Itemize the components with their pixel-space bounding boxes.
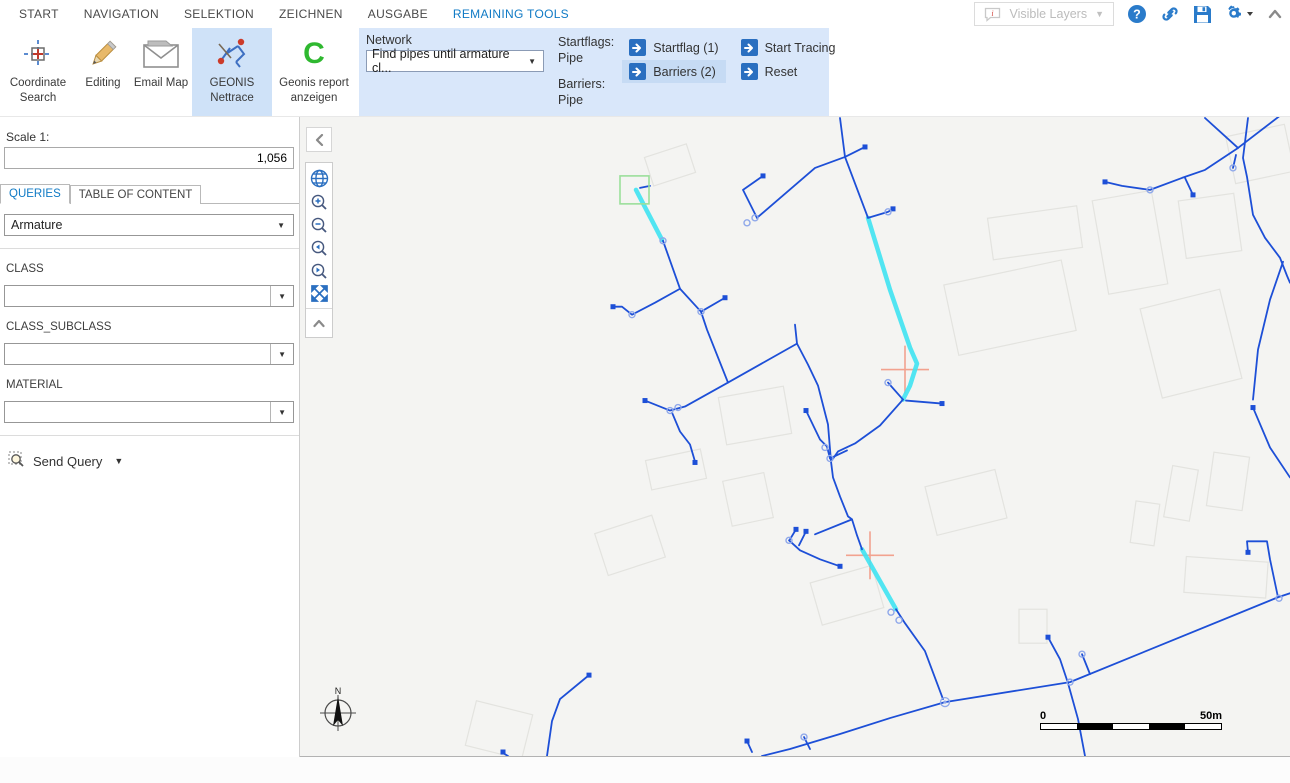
- class-label: CLASS: [6, 263, 299, 275]
- tab-queries[interactable]: QUERIES: [0, 184, 70, 204]
- help-button[interactable]: ?: [1127, 4, 1147, 24]
- network-dropdown[interactable]: Find pipes until armature cl... ▼: [366, 50, 544, 72]
- send-query-icon: [8, 451, 25, 471]
- tab-remaining-tools[interactable]: REMAINING TOOLS: [444, 7, 578, 21]
- info-bubble-icon: i: [984, 7, 1001, 22]
- reset-button-label: Reset: [765, 65, 798, 79]
- divider: [0, 435, 299, 436]
- settings-gear-button[interactable]: [1225, 4, 1255, 24]
- send-query-button[interactable]: Send Query ▼: [8, 451, 299, 471]
- network-dropdown-value: Find pipes until armature cl...: [372, 47, 521, 75]
- ribbon: Coordinate Search Editing Email Map GEON…: [0, 28, 1290, 117]
- visible-layers-label: Visible Layers: [1009, 7, 1087, 21]
- map-viewport[interactable]: N 0 50m: [300, 117, 1290, 757]
- start-tracing-button-label: Start Tracing: [765, 41, 836, 55]
- startflags-label: Startflags:: [558, 34, 614, 50]
- svg-text:i: i: [992, 9, 994, 18]
- tab-start[interactable]: START: [10, 7, 68, 21]
- query-type-dropdown[interactable]: Armature ▼: [4, 214, 294, 236]
- envelope-icon: [142, 35, 180, 73]
- scale-bar: 0 50m: [1040, 710, 1222, 730]
- scalebar-segments: [1040, 723, 1222, 730]
- chevron-down-icon: ▼: [114, 456, 123, 466]
- email-map-label: Email Map: [134, 76, 188, 91]
- class-dropdown[interactable]: ▼: [4, 285, 294, 307]
- startflag-button-label: Startflag (1): [653, 41, 718, 55]
- save-icon[interactable]: [1193, 5, 1212, 24]
- next-extent-button[interactable]: [306, 259, 332, 282]
- geonis-nettrace-label: GEONIS Nettrace: [192, 76, 272, 106]
- startflag-button[interactable]: Startflag (1): [622, 36, 725, 59]
- pencil-icon: [86, 35, 120, 73]
- scale-input[interactable]: [4, 147, 294, 169]
- geonis-nettrace-button[interactable]: GEONIS Nettrace: [192, 28, 272, 116]
- start-tracing-button[interactable]: Start Tracing: [734, 36, 843, 59]
- tab-selektion[interactable]: SELEKTION: [175, 7, 263, 21]
- class-subclass-dropdown[interactable]: ▼: [4, 343, 294, 365]
- svg-text:?: ?: [1133, 8, 1141, 22]
- compass-rose: N: [316, 685, 360, 733]
- chevron-down-icon: ▼: [271, 292, 293, 301]
- tab-table-of-content[interactable]: TABLE OF CONTENT: [70, 185, 202, 204]
- pipe-network-canvas: [300, 117, 1290, 756]
- barriers-button[interactable]: Barriers (2): [622, 60, 725, 83]
- compass-north-label: N: [335, 686, 342, 696]
- chevron-down-icon: ▼: [269, 221, 293, 230]
- geonis-report-label: Geonis report anzeigen: [272, 76, 356, 106]
- chevron-down-icon: ▼: [271, 408, 293, 417]
- arrow-right-icon: [629, 39, 646, 56]
- chevron-down-icon: ▼: [521, 57, 543, 66]
- full-extent-globe-button[interactable]: [306, 167, 332, 190]
- arrow-right-icon: [741, 39, 758, 56]
- email-map-button[interactable]: Email Map: [130, 28, 192, 116]
- nettrace-icon: [214, 35, 250, 73]
- status-strip: [0, 757, 1290, 783]
- material-dropdown[interactable]: ▼: [4, 401, 294, 423]
- tab-zeichnen[interactable]: ZEICHNEN: [270, 7, 352, 21]
- tab-ausgabe[interactable]: AUSGABE: [359, 7, 437, 21]
- ribbon-tab-bar: START NAVIGATION SELEKTION ZEICHNEN AUSG…: [0, 0, 1290, 28]
- panel-collapse-button[interactable]: [306, 127, 332, 152]
- material-label: MATERIAL: [6, 379, 299, 391]
- scalebar-end-label: 50m: [1200, 710, 1222, 722]
- geonis-report-button[interactable]: C Geonis report anzeigen: [272, 28, 356, 116]
- geonis-report-icon: C: [303, 35, 325, 73]
- previous-extent-button[interactable]: [306, 236, 332, 259]
- tab-navigation[interactable]: NAVIGATION: [75, 7, 168, 21]
- chevron-down-icon: ▼: [1095, 9, 1104, 19]
- send-query-label: Send Query: [33, 454, 102, 469]
- toolbar-collapse-button[interactable]: [306, 312, 332, 335]
- coordinate-search-label: Coordinate Search: [0, 76, 76, 106]
- collapse-ribbon-icon[interactable]: [1268, 9, 1282, 19]
- link-button[interactable]: [1160, 4, 1180, 24]
- barriers-value: Pipe: [558, 92, 614, 108]
- arrow-right-icon: [629, 63, 646, 80]
- panel-tabs: QUERIES TABLE OF CONTENT: [0, 183, 299, 204]
- scale-label: Scale 1:: [6, 130, 299, 144]
- visible-layers-dropdown[interactable]: i Visible Layers ▼: [974, 2, 1114, 26]
- query-side-panel: Scale 1: QUERIES TABLE OF CONTENT Armatu…: [0, 117, 300, 757]
- nettrace-ribbon-group: Network Find pipes until armature cl... …: [359, 28, 829, 116]
- startflags-value: Pipe: [558, 50, 614, 66]
- editing-label: Editing: [85, 76, 120, 91]
- barriers-button-label: Barriers (2): [653, 65, 716, 79]
- query-type-value: Armature: [11, 218, 62, 232]
- arrow-right-icon: [741, 63, 758, 80]
- editing-button[interactable]: Editing: [76, 28, 130, 116]
- zoom-out-button[interactable]: [306, 213, 332, 236]
- network-label: Network: [366, 33, 544, 47]
- map-toolbar: [305, 162, 333, 338]
- coordinate-search-button[interactable]: Coordinate Search: [0, 28, 76, 116]
- chevron-down-icon: ▼: [271, 350, 293, 359]
- divider: [0, 248, 299, 249]
- reset-button[interactable]: Reset: [734, 60, 843, 83]
- divider: [306, 308, 332, 309]
- class-subclass-label: CLASS_SUBCLASS: [6, 321, 299, 333]
- scalebar-start-label: 0: [1040, 710, 1046, 722]
- barriers-label: Barriers:: [558, 76, 614, 92]
- coordinate-search-icon: [22, 35, 54, 73]
- zoom-full-extent-button[interactable]: [306, 282, 332, 305]
- zoom-in-button[interactable]: [306, 190, 332, 213]
